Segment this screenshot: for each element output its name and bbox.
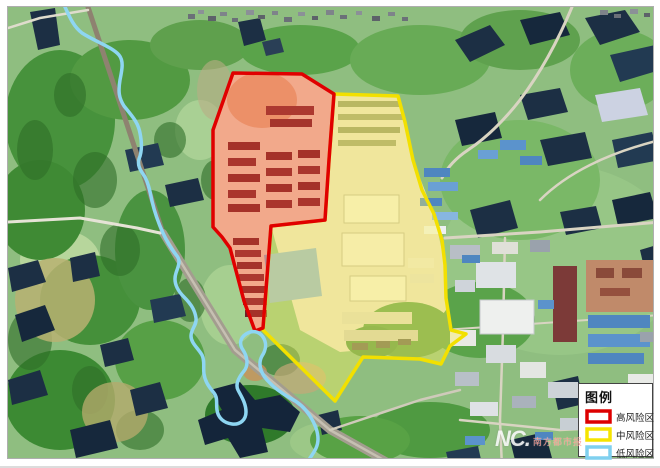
- legend-label-high-risk: 高风险区: [616, 410, 654, 424]
- satellite-map: 图例 高风险区 中风险区 低风险区 NC.: [8, 7, 653, 458]
- legend-item-low-risk: 低风险区: [585, 445, 652, 460]
- news-map-image: 图例 高风险区 中风险区 低风险区 NC.: [0, 0, 660, 468]
- medium-risk-swatch: [585, 427, 612, 442]
- satellite-map-canvas: [8, 7, 653, 458]
- map-legend: 图例 高风险区 中风险区 低风险区: [578, 383, 653, 457]
- low-risk-swatch: [585, 445, 612, 460]
- high-risk-swatch: [585, 409, 612, 424]
- legend-item-medium-risk: 中风险区: [585, 427, 652, 442]
- legend-label-low-risk: 低风险区: [616, 446, 654, 460]
- legend-label-medium-risk: 中风险区: [616, 428, 654, 442]
- legend-item-high-risk: 高风险区: [585, 409, 652, 424]
- legend-title: 图例: [585, 387, 652, 406]
